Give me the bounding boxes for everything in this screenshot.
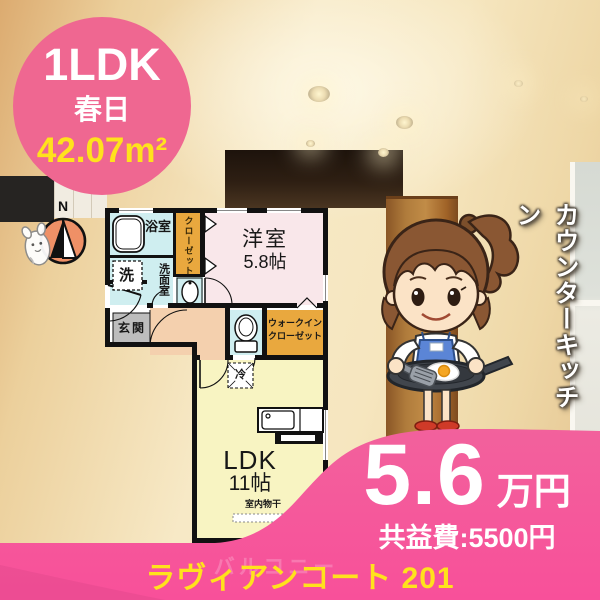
chef-character-icon — [366, 210, 526, 442]
room-label-wic2: クローゼット — [266, 332, 324, 341]
feature-caption-vertical: カウンターキッチン — [546, 202, 584, 434]
price-block: 5.6 万円 — [338, 432, 596, 518]
property-badge: 1LDK 春日 42.07m² — [13, 17, 191, 195]
room-label-western: 洋室 — [215, 229, 315, 251]
listing-image: 浴室 クローゼット 洗 洗面室 玄関 洋室 5.8帖 ウォークイン クローゼット… — [0, 0, 600, 600]
badge-area: 42.07m² — [37, 131, 167, 171]
common-fee: 共益費:5500円 — [338, 516, 596, 555]
ceiling-light — [378, 148, 389, 157]
room-label-ldk-size: 11帖 — [200, 473, 300, 495]
floor-plan: 浴室 クローゼット 洗 洗面室 玄関 洋室 5.8帖 ウォークイン クローゼット… — [105, 205, 330, 543]
room-label-bath: 浴室 — [145, 220, 171, 234]
room-label-ac: AC — [308, 504, 320, 512]
rent-amount: 5.6 — [363, 432, 486, 518]
ceiling-light — [580, 96, 588, 102]
room-label-entrance: 玄関 — [118, 322, 146, 335]
rent-unit: 万円 — [497, 461, 571, 515]
ceiling-light — [306, 140, 315, 147]
room-label-fridge: 冷 — [235, 370, 246, 382]
dark-cabinet — [225, 150, 403, 208]
room-label-wic1: ウォークイン — [266, 319, 324, 328]
property-name: ラヴィアンコート 201 — [0, 553, 600, 597]
room-label-ldk: LDK — [200, 447, 300, 474]
room-label-washroom: 洗面室 — [157, 263, 169, 296]
ceiling-light — [396, 116, 413, 129]
room-label-closet: クローゼット — [183, 216, 192, 276]
room-label-washer: 洗 — [119, 268, 134, 284]
badge-layout-type: 1LDK — [43, 41, 161, 88]
badge-location: 春日 — [74, 92, 130, 128]
room-label-western-size: 5.8帖 — [215, 253, 315, 272]
ceiling-light — [514, 80, 523, 87]
ceiling-light — [308, 86, 330, 102]
room-label-drying: 室内物干 — [227, 500, 299, 509]
